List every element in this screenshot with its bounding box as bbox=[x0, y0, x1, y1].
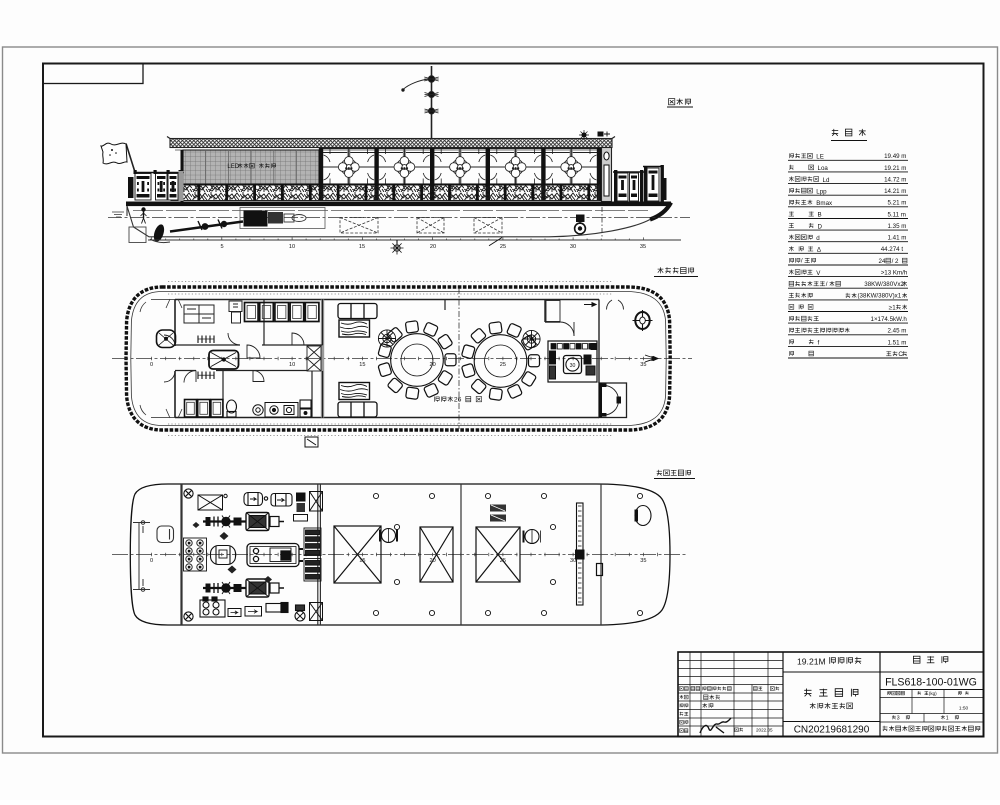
svg-text:Loa: Loa bbox=[818, 165, 829, 172]
svg-text:35: 35 bbox=[640, 362, 646, 368]
svg-text:/ 2: / 2 bbox=[892, 258, 899, 265]
svg-text:(38KW/380V)x1: (38KW/380V)x1 bbox=[858, 293, 902, 300]
svg-text:0: 0 bbox=[150, 362, 153, 368]
svg-text:19.21M: 19.21M bbox=[797, 657, 826, 667]
svg-text:2.45 m: 2.45 m bbox=[888, 328, 907, 335]
svg-text:0: 0 bbox=[150, 558, 153, 564]
svg-text:FLS618-100-01WG: FLS618-100-01WG bbox=[885, 677, 977, 689]
svg-text:f: f bbox=[818, 340, 820, 347]
svg-text:25: 25 bbox=[500, 362, 506, 368]
svg-text:(kg): (kg) bbox=[929, 691, 937, 696]
svg-text:1×174.5kW.h: 1×174.5kW.h bbox=[871, 316, 908, 323]
svg-text:44.274 t: 44.274 t bbox=[881, 246, 904, 253]
svg-text:1:50: 1:50 bbox=[959, 706, 969, 712]
svg-text:19.49 m: 19.49 m bbox=[884, 153, 906, 160]
svg-text:≥1: ≥1 bbox=[889, 304, 896, 311]
svg-text:B: B bbox=[818, 212, 822, 219]
svg-text:30: 30 bbox=[570, 244, 576, 250]
svg-text:25: 25 bbox=[500, 244, 506, 250]
svg-text:19.21 m: 19.21 m bbox=[884, 165, 906, 172]
svg-text:/: / bbox=[826, 281, 828, 288]
svg-text:Bmax: Bmax bbox=[816, 200, 833, 207]
svg-text:CN20219681290: CN20219681290 bbox=[794, 725, 870, 736]
svg-text:26: 26 bbox=[454, 397, 462, 404]
svg-text:Δ: Δ bbox=[817, 247, 821, 254]
svg-text:5.21 m: 5.21 m bbox=[888, 200, 907, 207]
svg-text:LE: LE bbox=[816, 154, 824, 161]
svg-text:14.21 m: 14.21 m bbox=[884, 188, 906, 195]
svg-text:3: 3 bbox=[897, 715, 900, 721]
svg-text:d: d bbox=[816, 235, 820, 242]
svg-text:1.41 m: 1.41 m bbox=[888, 235, 907, 242]
svg-text:35: 35 bbox=[640, 558, 646, 564]
svg-text:2022.05: 2022.05 bbox=[756, 728, 773, 733]
svg-text:30: 30 bbox=[570, 363, 576, 369]
svg-text:38KW/380Vx2: 38KW/380Vx2 bbox=[864, 281, 904, 288]
svg-text:35: 35 bbox=[640, 244, 646, 250]
svg-text:Ld: Ld bbox=[823, 177, 830, 184]
svg-text:15: 15 bbox=[359, 244, 365, 250]
svg-text:>13 Km/h: >13 Km/h bbox=[881, 270, 908, 277]
svg-text:20: 20 bbox=[430, 244, 436, 250]
svg-text:24: 24 bbox=[879, 258, 886, 265]
svg-text:10: 10 bbox=[289, 244, 295, 250]
svg-text:5.11 m: 5.11 m bbox=[888, 211, 906, 218]
svg-text:10: 10 bbox=[289, 362, 295, 368]
svg-text:D: D bbox=[818, 223, 823, 230]
svg-text:5: 5 bbox=[220, 244, 223, 250]
svg-text:14.72 m: 14.72 m bbox=[884, 176, 906, 183]
svg-text:1.35 m: 1.35 m bbox=[888, 223, 907, 230]
svg-text:15: 15 bbox=[359, 362, 365, 368]
svg-text:1.51 m: 1.51 m bbox=[888, 339, 907, 346]
svg-text:/: / bbox=[801, 258, 803, 265]
svg-text:1: 1 bbox=[946, 715, 949, 721]
svg-text:Lpp: Lpp bbox=[816, 188, 827, 195]
